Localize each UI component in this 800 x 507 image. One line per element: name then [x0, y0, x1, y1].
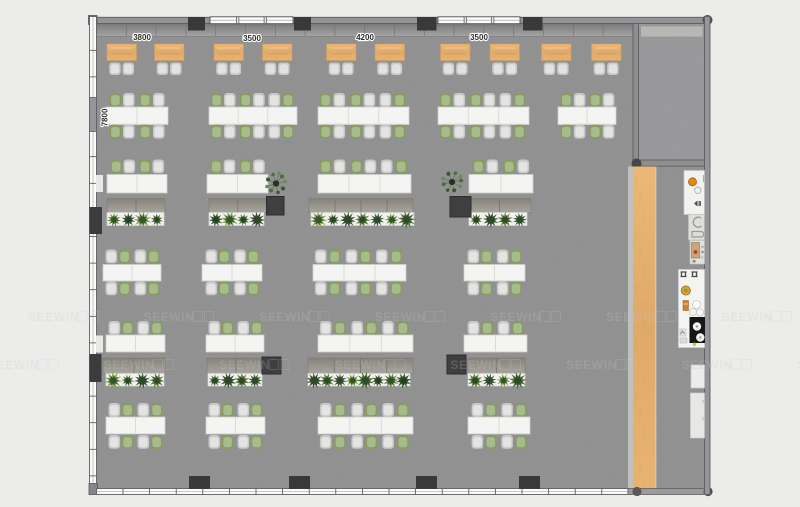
svg-text:SEEWIN: SEEWIN [566, 358, 617, 372]
svg-text:7800: 7800 [101, 108, 110, 126]
svg-text:SEEWIN: SEEWIN [490, 310, 541, 324]
svg-text:SEEWIN: SEEWIN [259, 310, 310, 324]
svg-text:SEEWIN: SEEWIN [144, 310, 195, 324]
svg-text:SEEWIN: SEEWIN [450, 358, 501, 372]
svg-text:3800: 3800 [133, 33, 151, 42]
svg-text:SEEWIN: SEEWIN [0, 358, 39, 372]
svg-text:SEEWIN: SEEWIN [28, 310, 79, 324]
svg-text:3500: 3500 [243, 34, 261, 43]
svg-text:SEEWIN: SEEWIN [606, 310, 657, 324]
svg-text:4200: 4200 [356, 33, 374, 42]
svg-text:SEEWIN: SEEWIN [335, 358, 386, 372]
svg-text:SEEWIN: SEEWIN [682, 358, 733, 372]
svg-text:SEEWIN: SEEWIN [219, 358, 270, 372]
svg-text:3500: 3500 [470, 33, 488, 42]
svg-text:SEEWIN: SEEWIN [104, 358, 155, 372]
svg-text:SEEWIN: SEEWIN [375, 310, 426, 324]
svg-text:SEEWIN: SEEWIN [722, 310, 773, 324]
